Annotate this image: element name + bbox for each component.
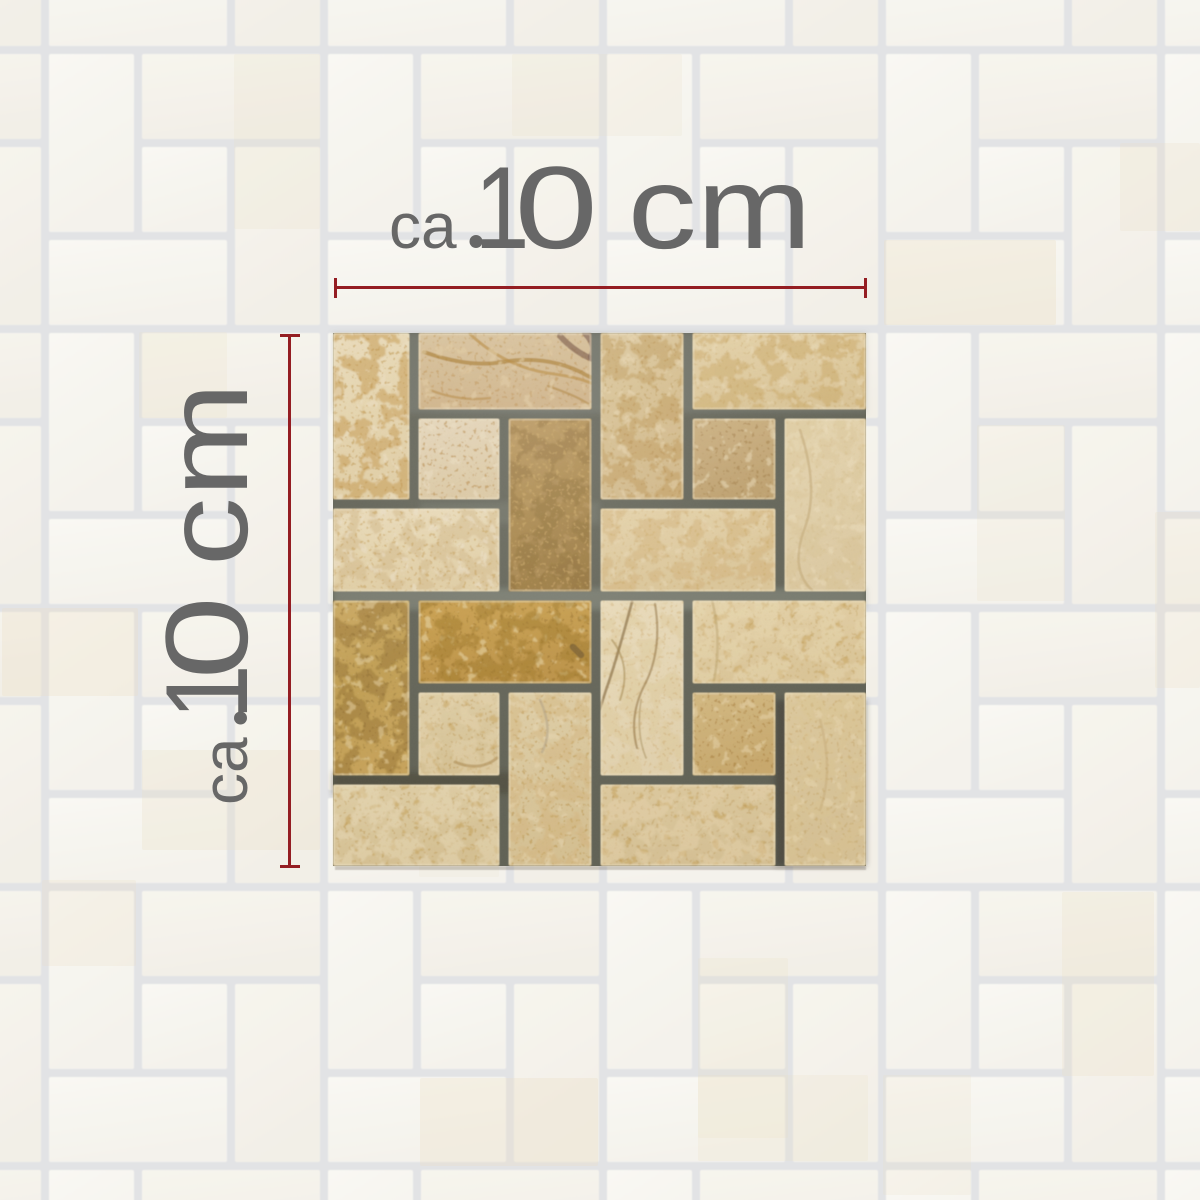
svg-text:ca: ca [389, 190, 457, 262]
svg-text:cm: cm [142, 382, 273, 566]
svg-text:cm: cm [628, 143, 812, 274]
svg-text:0: 0 [142, 596, 273, 679]
svg-text:ca: ca [189, 737, 261, 805]
svg-text:0: 0 [515, 143, 598, 274]
